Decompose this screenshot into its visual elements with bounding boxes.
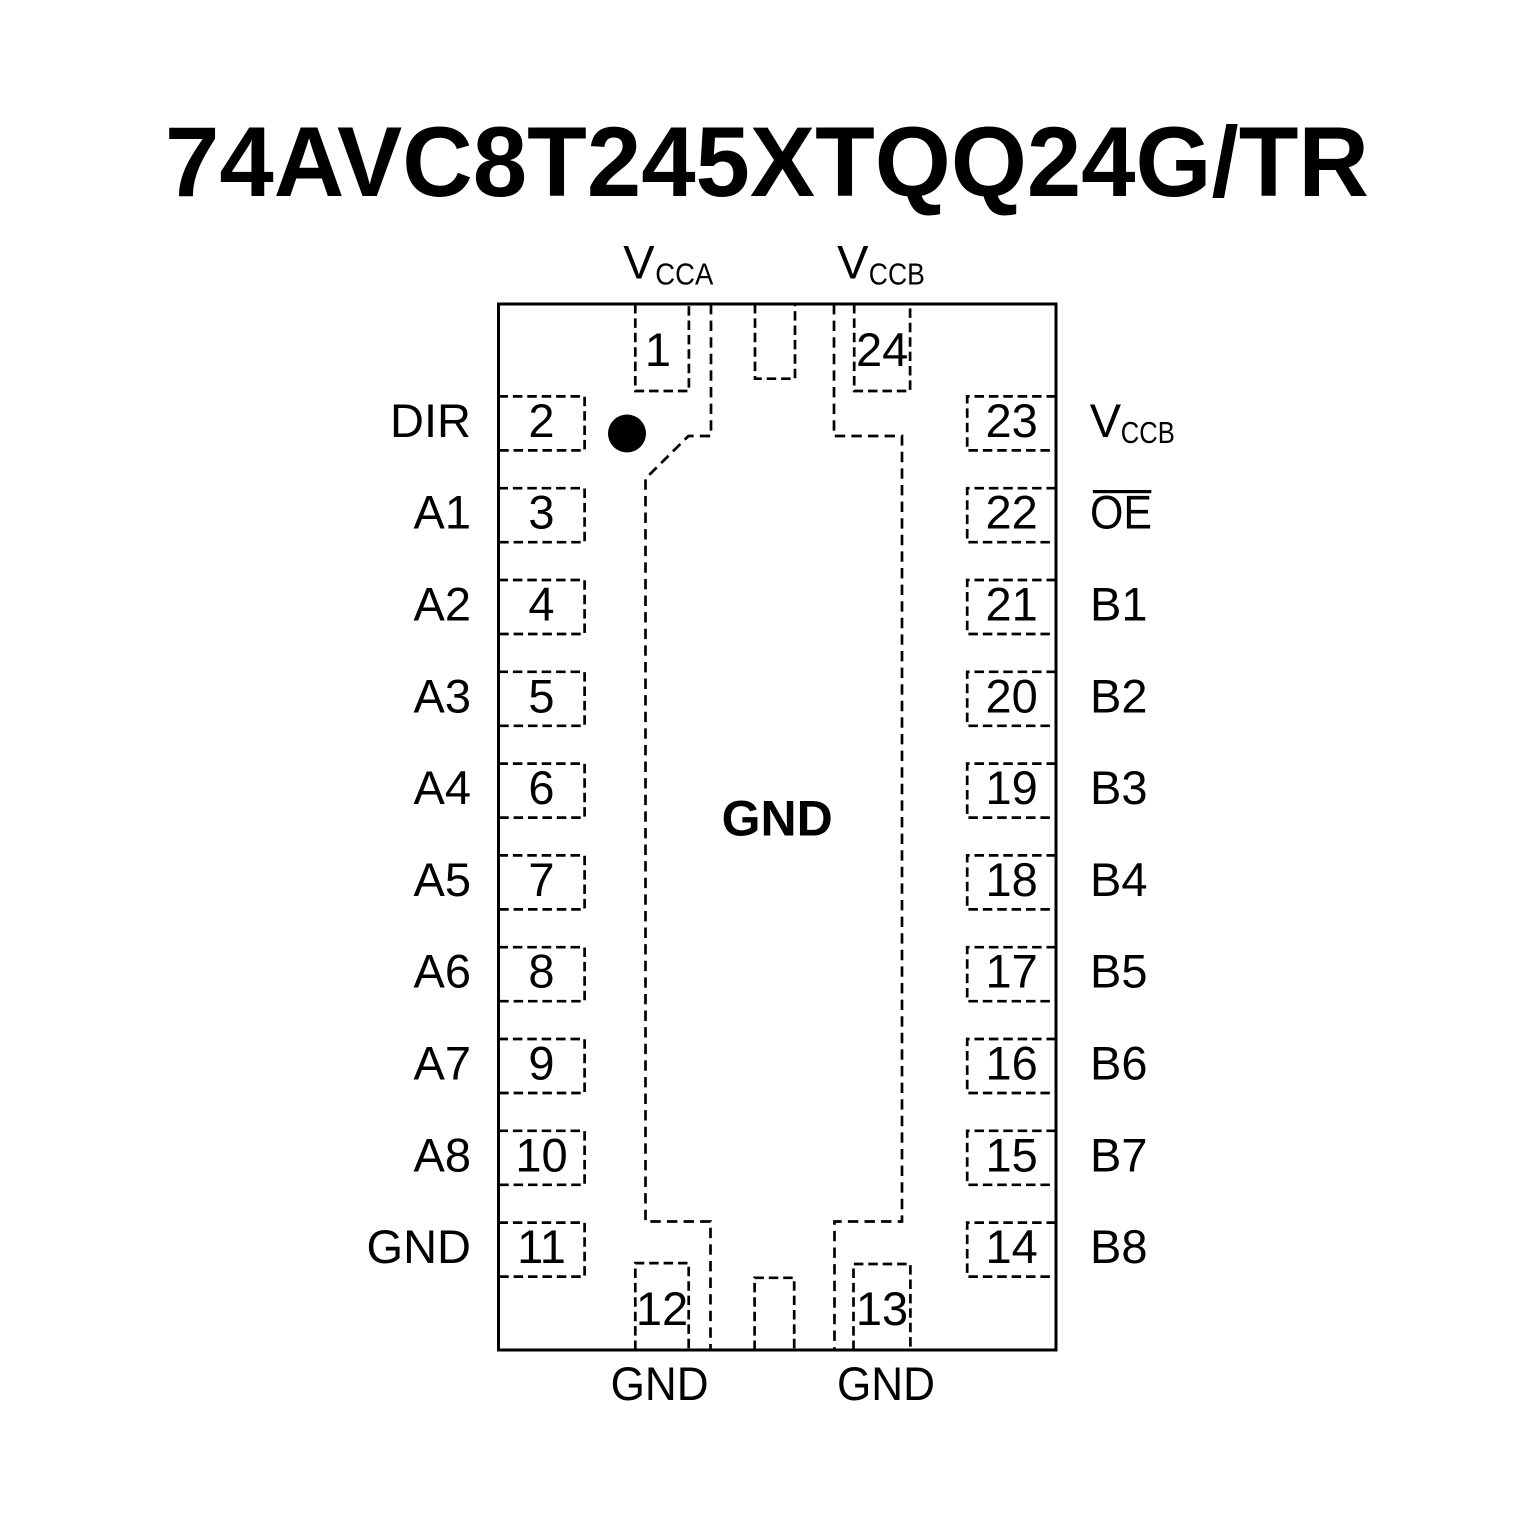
svg-text:B3: B3 (1090, 761, 1148, 814)
svg-text:6: 6 (528, 761, 554, 814)
svg-text:12: 12 (636, 1282, 688, 1335)
svg-text:GND: GND (837, 1357, 935, 1410)
svg-text:1: 1 (645, 323, 671, 376)
svg-text:OE: OE (1090, 486, 1152, 539)
svg-text:3: 3 (528, 486, 554, 539)
svg-text:V: V (1090, 394, 1122, 447)
svg-text:22: 22 (985, 486, 1037, 539)
svg-text:14: 14 (985, 1220, 1037, 1273)
svg-text:74AVC8T245XTQQ24G/TR: 74AVC8T245XTQQ24G/TR (165, 106, 1369, 217)
svg-text:A6: A6 (414, 945, 472, 998)
svg-text:24: 24 (856, 323, 908, 376)
svg-text:CCA: CCA (655, 257, 713, 292)
svg-text:10: 10 (515, 1128, 567, 1181)
svg-text:B2: B2 (1090, 669, 1148, 722)
svg-text:V: V (623, 235, 655, 288)
svg-text:B4: B4 (1090, 853, 1148, 906)
svg-text:B6: B6 (1090, 1037, 1148, 1090)
svg-text:21: 21 (985, 578, 1037, 631)
svg-text:2: 2 (528, 394, 554, 447)
svg-text:GND: GND (367, 1220, 471, 1273)
svg-text:A7: A7 (414, 1037, 472, 1090)
svg-text:A8: A8 (414, 1128, 472, 1181)
svg-text:DIR: DIR (390, 394, 471, 447)
svg-text:7: 7 (528, 853, 554, 906)
svg-text:B5: B5 (1090, 945, 1148, 998)
svg-text:11: 11 (517, 1220, 566, 1273)
svg-text:8: 8 (528, 945, 554, 998)
svg-text:B7: B7 (1090, 1128, 1148, 1181)
svg-text:A3: A3 (414, 669, 472, 722)
svg-text:18: 18 (985, 853, 1037, 906)
svg-text:CCB: CCB (1121, 415, 1175, 450)
svg-text:20: 20 (985, 669, 1037, 722)
svg-text:GND: GND (611, 1357, 709, 1410)
svg-text:CCB: CCB (869, 257, 925, 292)
svg-text:23: 23 (985, 394, 1037, 447)
svg-text:A1: A1 (414, 486, 472, 539)
svg-text:B8: B8 (1090, 1220, 1148, 1273)
svg-text:16: 16 (985, 1037, 1037, 1090)
svg-text:5: 5 (528, 669, 554, 722)
svg-text:B1: B1 (1090, 578, 1148, 631)
svg-text:A2: A2 (414, 578, 472, 631)
svg-text:GND: GND (722, 791, 833, 847)
svg-text:A4: A4 (414, 761, 472, 814)
svg-text:17: 17 (985, 945, 1037, 998)
svg-text:19: 19 (985, 761, 1037, 814)
svg-text:9: 9 (528, 1037, 554, 1090)
svg-text:15: 15 (985, 1128, 1037, 1181)
svg-text:13: 13 (856, 1282, 908, 1335)
svg-text:V: V (837, 235, 869, 288)
svg-text:A5: A5 (414, 853, 472, 906)
svg-text:4: 4 (528, 578, 554, 631)
